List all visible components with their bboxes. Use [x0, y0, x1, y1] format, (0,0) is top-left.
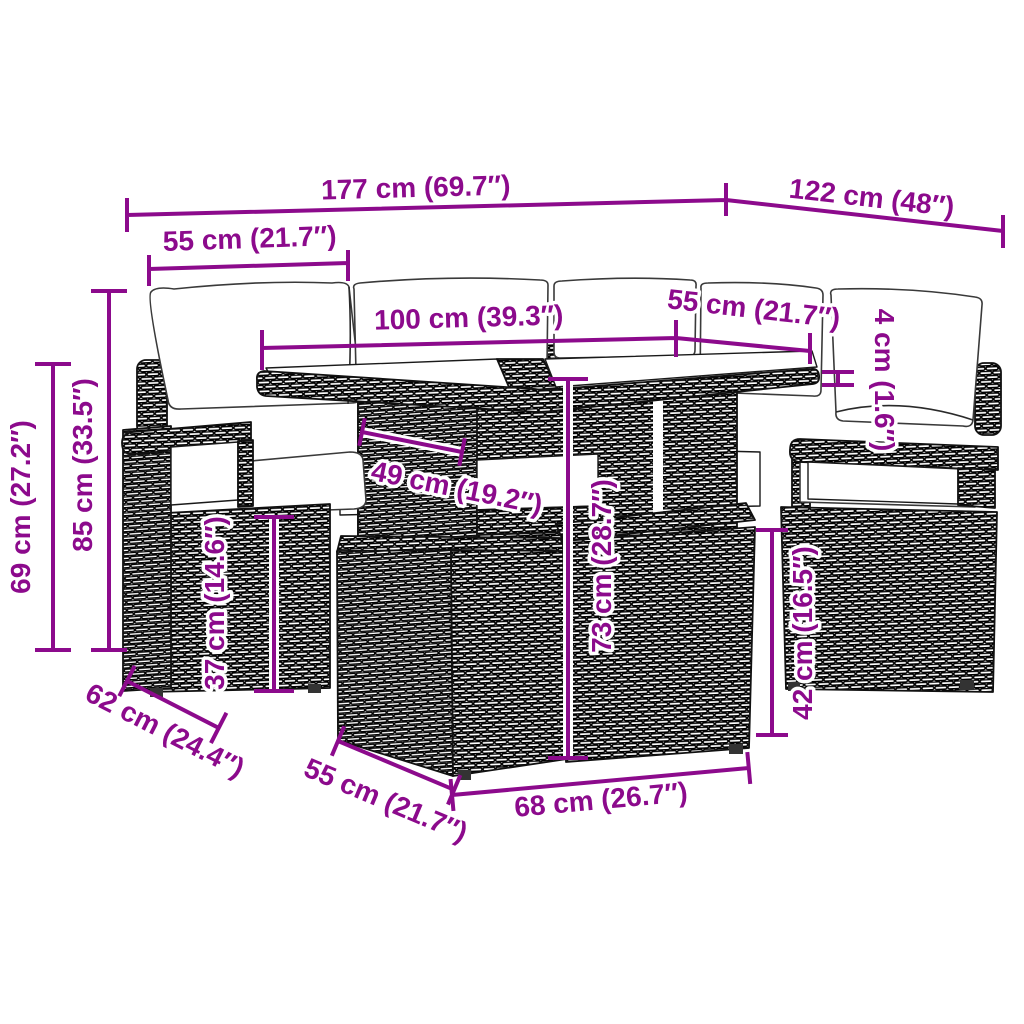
svg-text:69 cm (27.2″): 69 cm (27.2″) — [5, 420, 36, 594]
svg-text:73 cm (28.7″): 73 cm (28.7″) — [586, 479, 617, 653]
svg-text:177 cm (69.7″): 177 cm (69.7″) — [321, 170, 511, 206]
svg-text:37 cm (14.6″): 37 cm (14.6″) — [199, 516, 230, 690]
svg-text:55 cm (21.7″): 55 cm (21.7″) — [162, 220, 337, 257]
svg-text:42 cm (16.5″): 42 cm (16.5″) — [787, 546, 818, 720]
svg-text:4 cm (1.6″): 4 cm (1.6″) — [869, 309, 900, 452]
svg-text:85 cm (33.5″): 85 cm (33.5″) — [67, 378, 98, 552]
svg-text:100 cm (39.3″): 100 cm (39.3″) — [374, 299, 564, 335]
